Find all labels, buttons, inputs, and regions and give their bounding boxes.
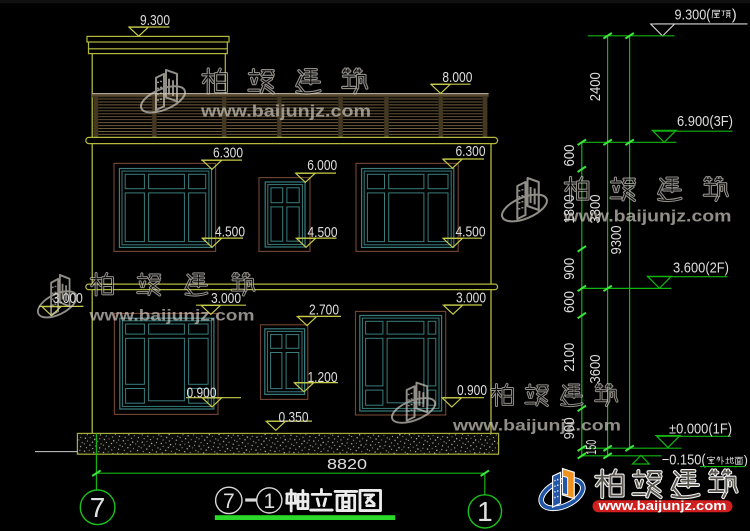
svg-text:0.350: 0.350	[279, 409, 309, 426]
svg-text:8.000: 8.000	[442, 69, 472, 86]
svg-text:0.900: 0.900	[187, 384, 217, 401]
svg-text:www.baijunjz.com: www.baijunjz.com	[452, 418, 621, 435]
svg-text:3.000: 3.000	[456, 290, 486, 307]
svg-text:www.baijunjz.com: www.baijunjz.com	[88, 308, 254, 325]
svg-text:7: 7	[223, 490, 235, 513]
svg-text:): )	[744, 452, 748, 467]
svg-text:0.900: 0.900	[457, 382, 487, 399]
svg-text:7: 7	[90, 492, 106, 523]
svg-text:9.300(: 9.300(	[675, 7, 711, 24]
svg-text:9.300: 9.300	[140, 12, 170, 29]
svg-text:1.200: 1.200	[308, 369, 338, 386]
svg-text:4.500: 4.500	[308, 224, 338, 241]
svg-text:4.500: 4.500	[456, 223, 486, 240]
svg-text:9300: 9300	[608, 226, 625, 255]
svg-text:www.baijunjz.com: www.baijunjz.com	[200, 102, 371, 121]
svg-text:www.baijunjz.com: www.baijunjz.com	[562, 208, 731, 226]
svg-text:www.baijunjz.com: www.baijunjz.com	[597, 499, 726, 513]
svg-text:6.300: 6.300	[456, 143, 486, 160]
svg-text:3.600(2F): 3.600(2F)	[673, 260, 729, 277]
svg-text:1: 1	[477, 496, 493, 527]
svg-text:600: 600	[561, 291, 578, 313]
svg-text:6.300: 6.300	[213, 144, 243, 161]
svg-text:3600: 3600	[587, 355, 604, 384]
svg-text:2400: 2400	[587, 72, 604, 101]
svg-text:±0.000(1F): ±0.000(1F)	[669, 420, 732, 437]
svg-text:2100: 2100	[561, 343, 578, 372]
svg-text:150: 150	[583, 440, 600, 455]
svg-text:900: 900	[561, 258, 578, 280]
svg-text:−0.150(: −0.150(	[662, 451, 706, 468]
svg-text:2.700: 2.700	[309, 302, 339, 319]
svg-text:): )	[732, 7, 737, 24]
svg-text:4.500: 4.500	[215, 223, 245, 240]
svg-text:600: 600	[561, 145, 578, 167]
svg-text:8820: 8820	[327, 456, 367, 473]
svg-text:3.000: 3.000	[211, 290, 241, 307]
svg-text:6.900(3F): 6.900(3F)	[677, 113, 733, 130]
svg-text:1: 1	[263, 490, 275, 513]
svg-text:6.000: 6.000	[307, 157, 337, 174]
